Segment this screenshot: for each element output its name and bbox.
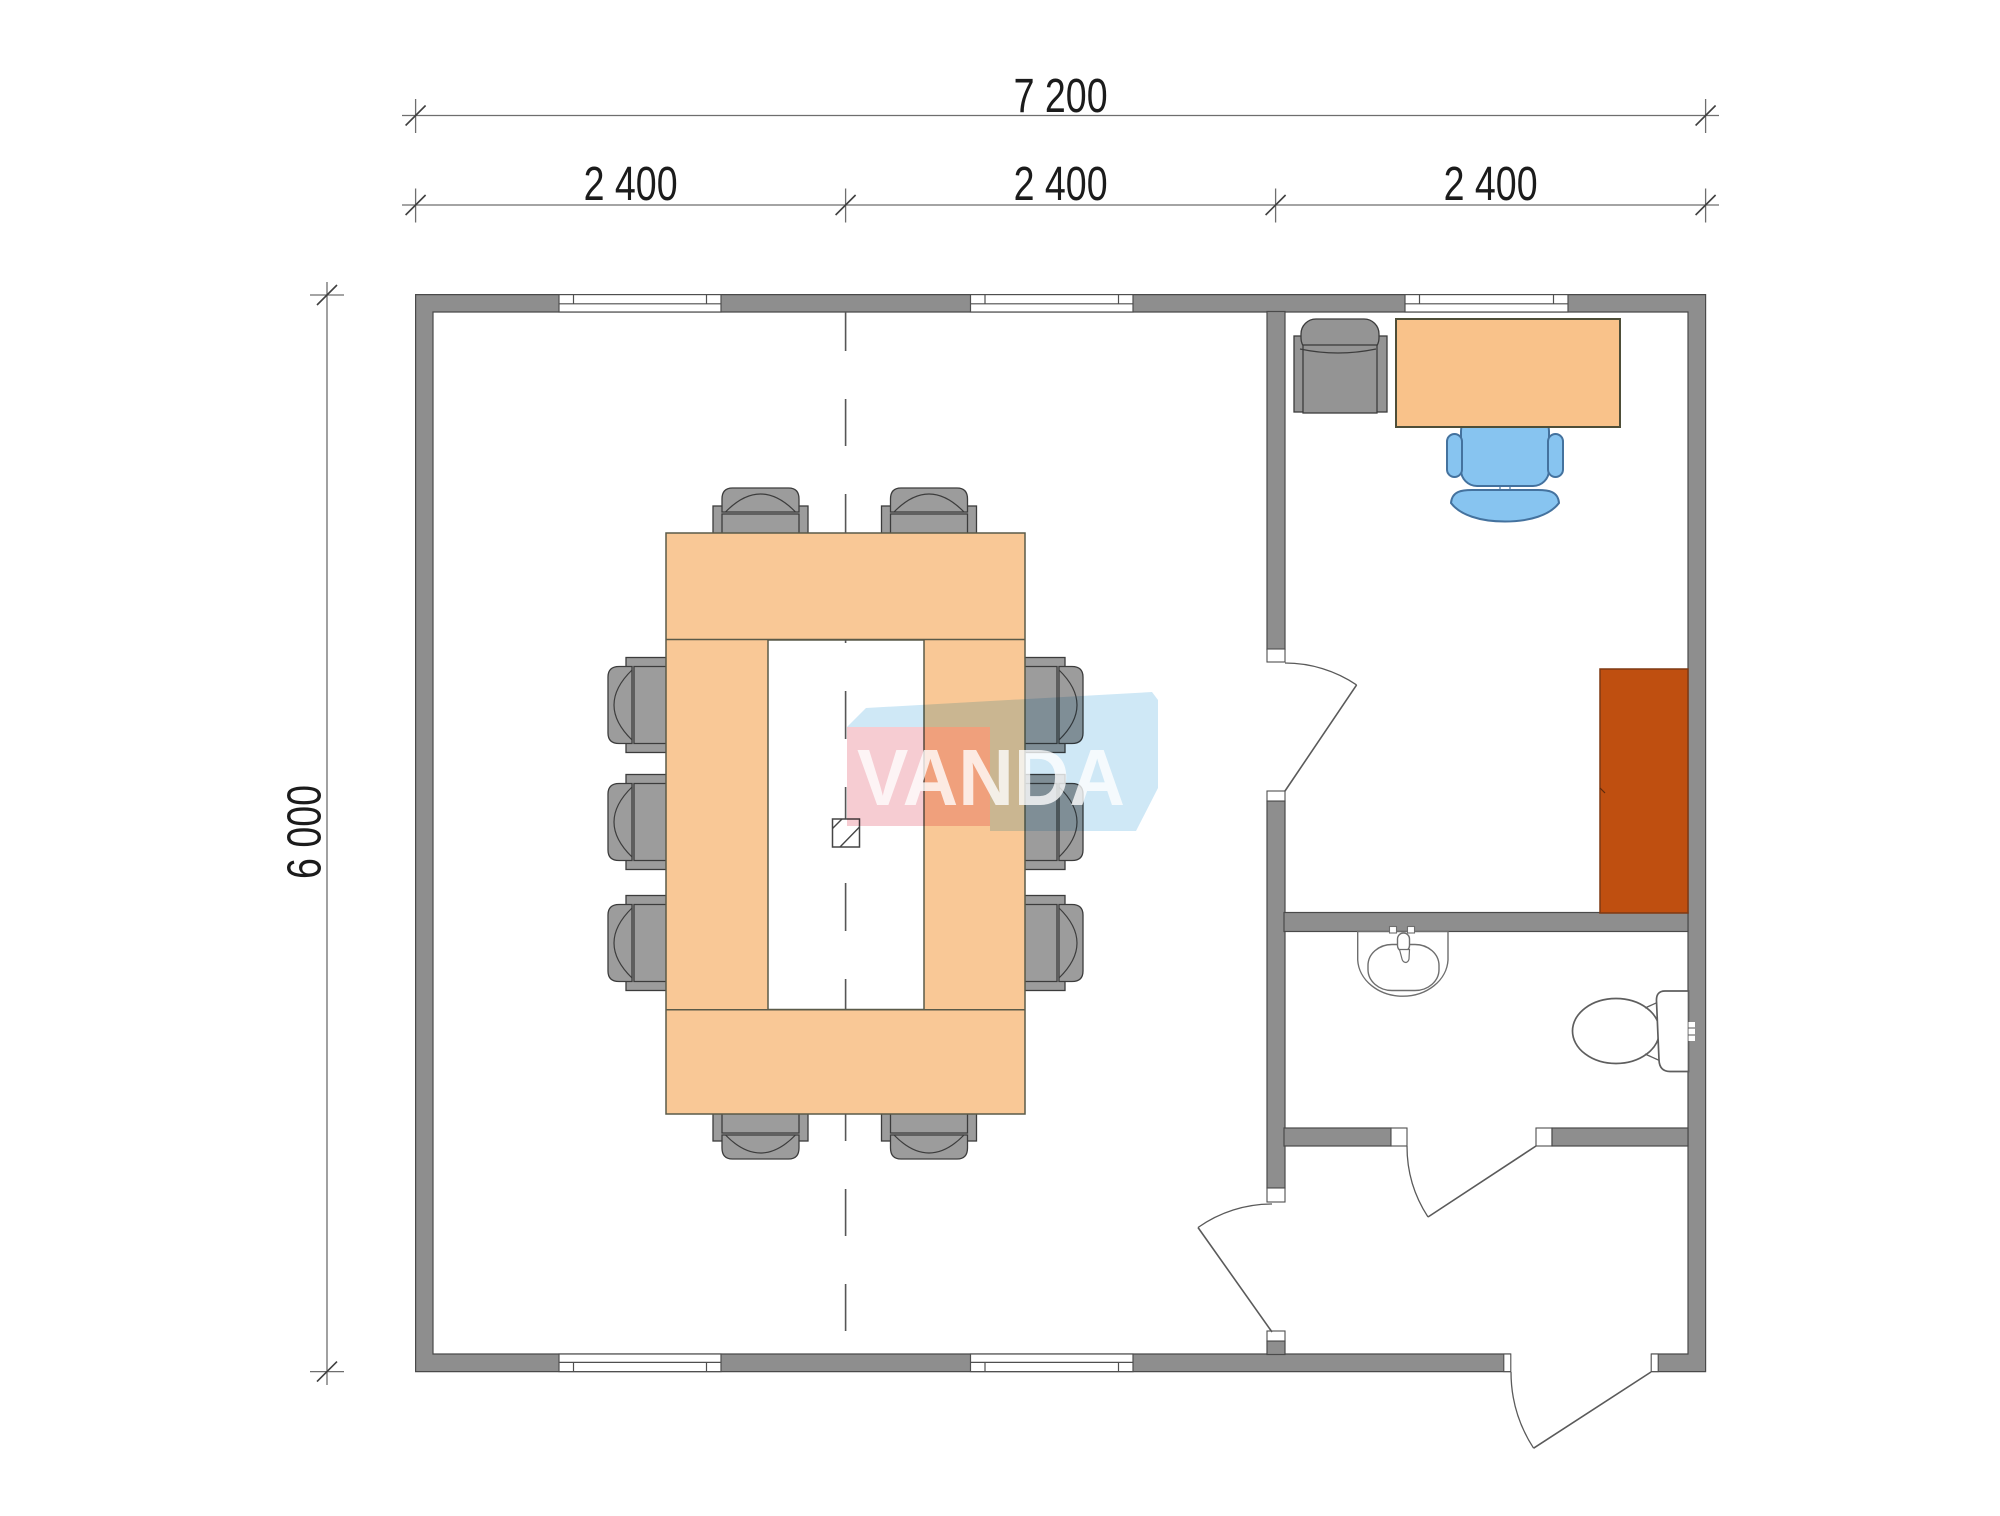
svg-text:6 000: 6 000	[279, 785, 332, 879]
svg-text:2 400: 2 400	[1444, 158, 1538, 211]
svg-text:2 400: 2 400	[584, 158, 678, 211]
svg-text:7 200: 7 200	[1014, 70, 1108, 123]
svg-text:VANDA: VANDA	[857, 733, 1125, 822]
svg-text:2 400: 2 400	[1014, 158, 1108, 211]
